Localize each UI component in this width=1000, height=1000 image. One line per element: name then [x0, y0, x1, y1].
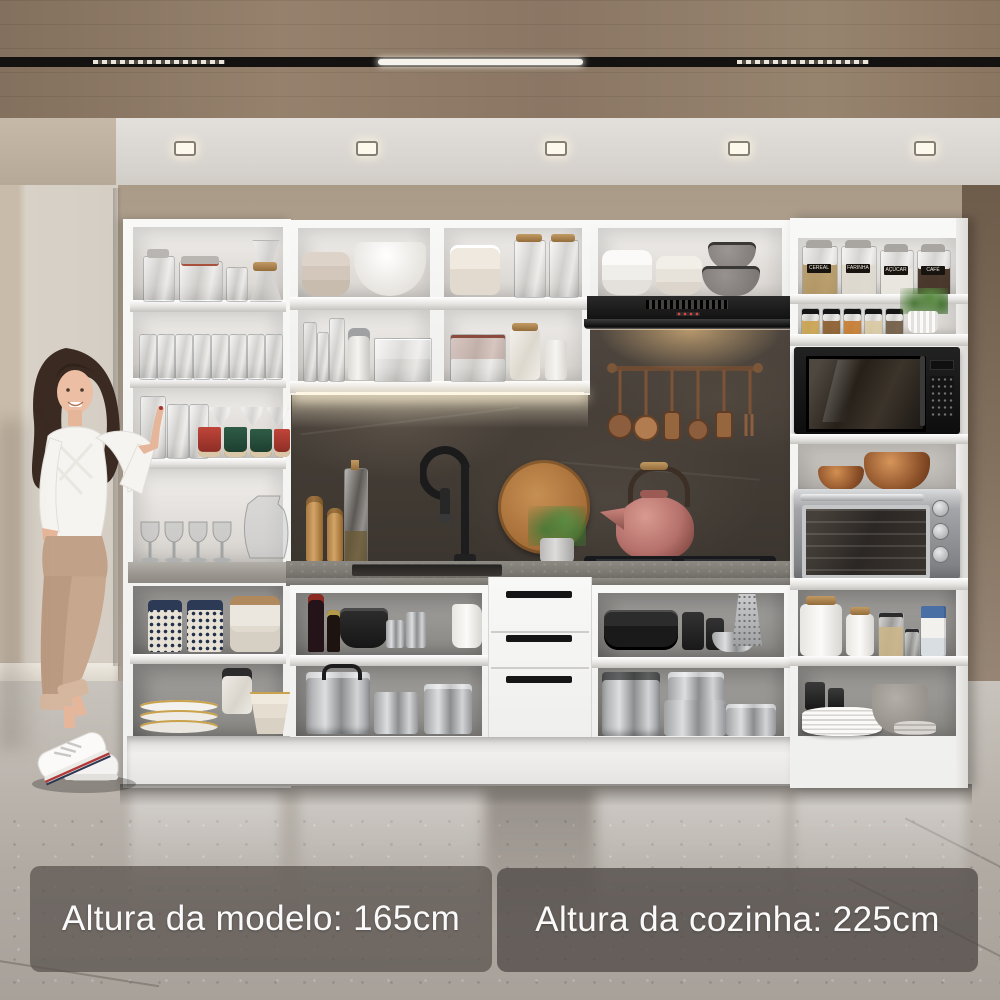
shelf: [790, 334, 968, 346]
small-white-jar: [545, 340, 567, 380]
pepper-mill: [306, 496, 323, 562]
canister-red-rim-lid: [181, 256, 219, 266]
kitchen-height-label: Altura da cozinha: 225cm: [535, 900, 940, 940]
jar-wood-lid: [516, 234, 542, 242]
black-canister: [682, 612, 704, 650]
spice-jar: [843, 308, 862, 336]
canister-wood-lid: [806, 596, 836, 605]
hood-vent-slats: [646, 300, 728, 309]
drawer-handle: [506, 591, 572, 598]
small-gray-plate-stack: [894, 721, 936, 735]
white-ceiling-band: [0, 118, 1000, 190]
canister-wood-lid: [850, 607, 870, 615]
small-glass-jar: [904, 628, 920, 658]
pot-lid-handle: [322, 664, 362, 680]
drawer-handle: [506, 635, 572, 642]
black-pot: [340, 608, 388, 648]
saucepan: [424, 684, 472, 734]
jar-label-text: AÇÚCAR: [885, 267, 906, 273]
kettle-lid: [640, 490, 668, 498]
shelf: [592, 657, 792, 668]
white-canister-small: [846, 614, 874, 656]
model-face: [57, 370, 93, 414]
hall-ceiling: [0, 118, 116, 192]
stockpot-large: [602, 672, 660, 736]
container-stack: [450, 245, 500, 295]
jar-metal-lid: [806, 240, 832, 248]
marble-canister: [510, 328, 540, 380]
drawer-unit: [488, 577, 592, 737]
microwave-keypad: [930, 376, 954, 416]
pot-with-lid: [668, 672, 724, 702]
bottle: [317, 332, 329, 382]
drawer-handle: [506, 676, 572, 683]
kitchen-product-photo: CEREAL FARINHA AÇÚCAR CAFÉ: [0, 0, 1000, 1000]
drinking-glass: [247, 334, 265, 380]
storage-boxes: [374, 338, 432, 382]
oil-bottle: [344, 468, 368, 564]
small-pot: [726, 704, 776, 736]
small-jar: [226, 267, 248, 302]
kettle-handle-grip: [640, 462, 668, 470]
oven-knob: [932, 500, 949, 517]
recessed-spotlight: [356, 141, 378, 156]
drinking-glass: [211, 334, 229, 380]
jar-label: AÇÚCAR: [884, 266, 908, 275]
glass-jar-wood-lid: [549, 240, 579, 298]
spatula-icon: [664, 412, 680, 440]
drawer-gap: [491, 667, 589, 669]
small-ladle-icon: [688, 420, 708, 440]
marble-jar: [222, 668, 252, 714]
jar-label: CEREAL: [807, 264, 831, 273]
jar-label-text: FARINHA: [847, 265, 869, 271]
kitchen-height-badge: Altura da cozinha: 225cm: [497, 868, 978, 972]
mug-red: [198, 427, 221, 457]
kettle-body: [616, 496, 694, 560]
ceramic-stack: [230, 596, 280, 652]
metal-canister: [386, 620, 404, 648]
oven-knob: [932, 546, 949, 563]
black-canister: [805, 682, 825, 710]
wine-bottle: [308, 594, 324, 652]
model-height-badge: Altura da modelo: 165cm: [30, 866, 492, 972]
canister-wood-lid: [512, 323, 538, 331]
undercabinet-light-glow: [292, 394, 588, 428]
jar-label-text: CEREAL: [809, 265, 829, 271]
metal-canister: [406, 612, 426, 648]
drinking-glass: [229, 334, 247, 380]
jar-metal-lid: [884, 244, 908, 252]
glass-containers-red-rim: [450, 334, 506, 382]
jar-lid: [147, 249, 169, 258]
shelf: [790, 656, 968, 666]
skimmer-icon: [634, 416, 658, 440]
hood-visor: [584, 319, 794, 329]
oven-door-glass: [802, 505, 930, 579]
oven-handle: [800, 494, 924, 501]
glass-jar: [143, 256, 175, 302]
jar-label: CAFÉ: [921, 266, 945, 275]
cream-bowl-stack: [656, 256, 702, 295]
undercabinet-led-strip: [296, 392, 584, 395]
slotted-turner-icon: [716, 412, 732, 438]
led-dotted-segment: [93, 60, 225, 64]
stockpot: [306, 672, 370, 734]
shelf: [290, 655, 490, 666]
jar-metal-lid: [845, 240, 871, 248]
pepper-mill: [327, 508, 343, 562]
coffee-maker-collar: [253, 262, 277, 271]
jar-wood-lid: [551, 234, 575, 242]
utensil-rail: [604, 358, 766, 462]
oat-jar: [878, 612, 904, 658]
white-bowl-stack: [602, 250, 652, 295]
oil-bottle-cork: [351, 460, 359, 470]
microwave-display: [930, 360, 954, 370]
shelf: [790, 434, 968, 444]
shelf-plant-pot: [908, 311, 938, 333]
oven-knob: [932, 523, 949, 540]
jar-metal-lid: [921, 244, 945, 252]
hood-light-glow: [600, 329, 780, 371]
shelf: [290, 297, 590, 310]
spice-jar: [822, 308, 841, 336]
led-dotted-segment: [737, 60, 869, 64]
drawer-gap: [491, 631, 589, 633]
model-ankle: [64, 706, 75, 728]
shelf: [790, 578, 968, 590]
white-canister-wood-lid: [800, 604, 842, 656]
sink: [352, 564, 502, 576]
mug-green: [250, 429, 272, 457]
model-wall-shadow: [0, 420, 40, 750]
hood-buttons: [676, 312, 700, 316]
spice-jar: [864, 308, 883, 336]
ladle-icon: [608, 414, 632, 438]
spice-jar: [801, 308, 820, 336]
mug-red: [274, 429, 290, 457]
recessed-spotlight: [914, 141, 936, 156]
copper-bowl-large: [864, 452, 930, 490]
glass-jar-wood-lid: [514, 240, 546, 298]
bottle: [303, 322, 317, 382]
patterned-canister: [187, 600, 223, 652]
model-pointing-hand: [138, 406, 164, 454]
recessed-spotlight: [728, 141, 750, 156]
saucepan-long-handle: [664, 700, 726, 736]
saucepan: [374, 692, 418, 734]
drinking-glass: [193, 334, 211, 380]
carton-box: [921, 606, 946, 656]
recessed-spotlight: [545, 141, 567, 156]
mug-green: [224, 427, 247, 457]
jar-label-text: CAFÉ: [926, 267, 939, 273]
cocktail-shaker: [348, 328, 370, 380]
model-trousers: [42, 536, 107, 578]
drinking-glass: [265, 334, 283, 380]
scalloped-bowl-stack: [302, 252, 350, 296]
cast-iron-pans: [604, 610, 678, 650]
glass-canister: [179, 261, 223, 302]
glass-pitcher: [244, 496, 288, 558]
led-bar-segment: [378, 59, 583, 65]
recessed-spotlight: [174, 141, 196, 156]
white-pitcher: [452, 604, 482, 648]
model-neck: [68, 410, 82, 426]
model-height-label: Altura da modelo: 165cm: [62, 899, 460, 939]
model-nail: [159, 406, 163, 410]
soy-bottle: [327, 610, 340, 652]
microwave-handle: [920, 356, 925, 426]
faucet: [420, 426, 488, 568]
white-plate-stack: [802, 707, 882, 736]
bottle: [329, 318, 345, 382]
fork-icon: [746, 414, 752, 436]
jar-label: FARINHA: [846, 264, 870, 273]
